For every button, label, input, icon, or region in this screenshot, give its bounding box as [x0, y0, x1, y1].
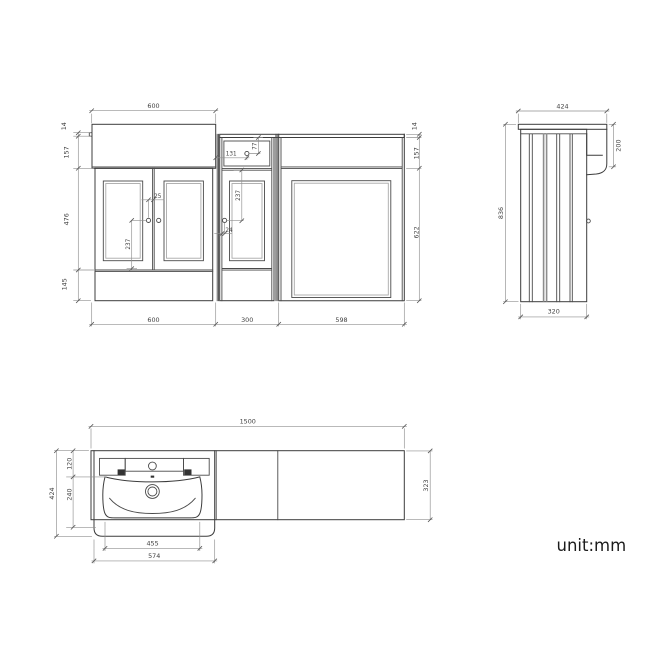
- dim-mid-knob-from-left: 131: [226, 151, 237, 157]
- vanity-left-door-panel: [103, 181, 142, 261]
- dim-front-bottom-vanity: 600: [147, 316, 159, 324]
- vanity-worktop-lines: [89, 133, 215, 167]
- basin-bowl-inner-curve: [110, 498, 196, 513]
- dim-front-right-worktop: 14: [411, 122, 419, 130]
- dim-plan-worktop-depth: 323: [422, 479, 430, 491]
- middle-door-knob: [223, 218, 227, 222]
- side-front-profile: [587, 129, 607, 174]
- dim-front-right-apron: 157: [413, 147, 421, 159]
- unit-label: unit:mm: [557, 536, 627, 555]
- dim-plan-vanity-depth: 424: [48, 487, 56, 499]
- basin-right-ledge-mark: [184, 469, 191, 475]
- dim-side-height: 836: [497, 207, 505, 219]
- dim-side-front-drop: 200: [614, 139, 622, 151]
- dim-front-bottom-wc: 598: [335, 316, 347, 324]
- vanity-right-door-panel-inner: [167, 184, 201, 259]
- plan-dimension-lines: [54, 426, 432, 563]
- dim-plan-total-width: 1500: [240, 417, 256, 425]
- middle-unit-outline: [220, 138, 274, 301]
- wc-front-panel-inner: [294, 183, 388, 295]
- side-panel-lines: [521, 134, 587, 302]
- vanity-left-knob: [146, 218, 150, 222]
- side-view: 424 200 836 320: [497, 103, 623, 320]
- vanity-left-door-panel-inner: [106, 184, 140, 259]
- dim-mid-knob-from-top: 77: [253, 142, 259, 150]
- front-elevation-view: 600 14 157 476 145 14 157 622 600 300 59…: [60, 102, 421, 326]
- dim-front-left-apron: 157: [62, 146, 70, 158]
- dim-knob-offset: 25: [154, 194, 162, 200]
- technical-drawing-page: 600 14 157 476 145 14 157 622 600 300 59…: [0, 0, 650, 650]
- dim-front-left-doors: 476: [62, 213, 70, 225]
- side-body-outline: [521, 129, 587, 301]
- vanity-right-knob: [157, 218, 161, 222]
- wc-unit-outline: [279, 134, 405, 300]
- drain-inner: [148, 487, 157, 496]
- drawing-canvas: 600 14 157 476 145 14 157 622 600 300 59…: [0, 0, 650, 650]
- dim-front-top-width: 600: [147, 102, 159, 110]
- overflow-slot: [151, 476, 155, 478]
- side-panel-groove: [544, 134, 547, 302]
- vanity-apron-outline: [92, 124, 216, 168]
- middle-drawer-knob: [245, 151, 249, 155]
- dim-mid-knob-drop: 237: [236, 190, 242, 201]
- dim-plan-bowl-inner-depth: 240: [65, 488, 73, 500]
- side-worktop: [518, 124, 607, 129]
- front-dimension-lines: [73, 111, 421, 327]
- basin-bowl-outline: [103, 477, 202, 518]
- plan-worktop-divisions: [216, 451, 278, 520]
- dim-vanity-knob-drop: 237: [126, 238, 132, 249]
- vanity-right-door-panel: [164, 181, 203, 261]
- wc-unit-frame-lines: [281, 138, 402, 301]
- dim-mid-knob-edge: 24: [225, 228, 233, 234]
- dim-side-body-depth: 320: [548, 308, 560, 316]
- plan-dimension-ticks: [54, 424, 432, 563]
- dim-front-right-body: 622: [413, 226, 421, 238]
- dim-side-worktop-depth: 424: [556, 103, 568, 111]
- plan-worktop-outline: [91, 451, 404, 520]
- plan-view: 1500 424 120 240 323 455 574: [48, 417, 433, 563]
- faucet-hole: [149, 462, 157, 470]
- dim-plan-deck-depth: 120: [65, 458, 73, 470]
- dim-plan-vanity-width: 574: [148, 552, 160, 560]
- dim-front-left-plinth: 145: [60, 278, 68, 290]
- plan-vanity-outline: [94, 451, 215, 537]
- dim-plan-bowl-width: 455: [146, 540, 158, 548]
- dim-front-bottom-mid: 300: [241, 316, 253, 324]
- wc-front-panel: [292, 181, 391, 298]
- basin-left-ledge-mark: [118, 469, 125, 475]
- dim-front-left-worktop: 14: [60, 122, 68, 130]
